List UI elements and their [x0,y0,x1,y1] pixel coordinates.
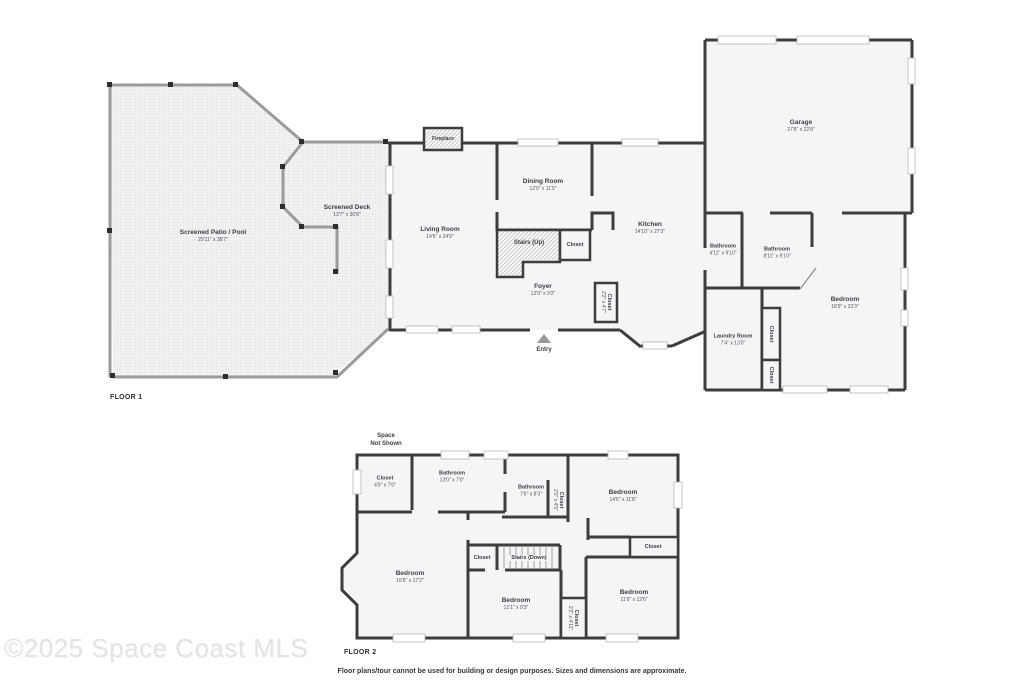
room-foyer: Foyer 12'0" x 9'2" [531,283,556,297]
stair-closet-label-floor1: Closet [567,242,584,248]
room-dims: 7'6" x 8'3" [518,491,544,497]
closet-dims: 2'2" x 4'11" [567,606,573,630]
entry-label: Entry [536,347,551,353]
vert-closet-bottom-label: Closet 2'2" x 4'11" [567,606,579,630]
room-garage: Garage 27'8" x 22'8" [787,119,814,133]
room-name: Living Room [420,226,459,234]
room-name: Bedroom [502,597,531,605]
room-dims: 4'11" x 9'10" [709,250,736,256]
room-dims: 14'10" x 27'3" [635,229,665,235]
space-note-line1: Space [370,433,401,441]
room-dims: 13'0" x 7'0" [439,477,465,483]
vert-closet-top-label: Closet 2'0" x 4'5" [552,489,564,511]
room-dims: 8'11" x 9'10" [763,253,790,259]
right-closet-label: Closet [645,544,662,550]
floor1-room-fills [110,40,912,390]
room-dining-room: Dining Room 12'0" x 11'5" [523,178,563,192]
floor2-tag: FLOOR 2 [344,649,376,656]
room-name: Foyer [531,283,556,291]
closet-name: Closet [558,489,564,511]
room-kitchen: Kitchen 14'10" x 27'3" [635,221,665,235]
room-name: Bedroom [831,296,860,304]
room-name: Bedroom [620,589,649,597]
stairs-up-label: Stairs (Up) [514,240,544,246]
stair-closet-label-floor2: Closet [474,555,491,561]
room-bedroom-floor1: Bedroom 18'9" x 23'3" [831,296,860,310]
room-name: Closet [374,475,396,482]
room-screened-deck: Screened Deck 13'7" x 30'8" [324,204,371,218]
hall-closet-1-label: Closet [768,326,774,343]
room-dims: 16'6" x 17'2" [396,578,425,584]
room-dims: 12'1" x 9'3" [502,605,531,611]
space-note-line2: Not Shown [370,441,401,449]
floorplan-canvas [0,0,1024,683]
closet-name: Closet [606,291,612,313]
room-dims: 7'4" x 13'0" [714,340,753,346]
room-name: Bedroom [609,489,638,497]
room-name: Bedroom [396,570,425,578]
room-name: Bathroom [763,246,790,253]
room-bedroom-floor2-mid: Bedroom 12'1" x 9'3" [502,597,531,611]
room-name: Bathroom [709,243,736,250]
floor1-tag: FLOOR 1 [110,394,142,401]
room-dims: 29'11" x 38'7" [180,237,246,243]
room-dims: 4'9" x 7'0" [374,482,396,488]
room-bedroom-floor2-big: Bedroom 16'6" x 17'2" [396,570,425,584]
fireplace-label: Fireplace [432,136,454,142]
room-bedroom-floor2-topright: Bedroom 14'6" x 11'8" [609,489,638,503]
stairs-down-label: Stairs (Down) [509,555,548,561]
room-dims: 12'0" x 9'2" [531,291,556,297]
closet-name: Closet [573,606,579,630]
room-bedroom-floor2-bottomright: Bedroom 11'9" x 12'6" [620,589,649,603]
room-bathroom-floor2-left: Bathroom 13'0" x 7'0" [439,470,465,483]
room-name: Screened Deck [324,204,371,212]
room-name: Kitchen [635,221,665,229]
disclaimer-text: Floor plans/tour cannot be used for buil… [0,668,1024,675]
room-dims: 11'9" x 12'6" [620,597,649,603]
room-bathroom-large: Bathroom 8'11" x 9'10" [763,246,790,259]
room-laundry: Laundry Room 7'4" x 13'0" [714,333,753,346]
room-name: Dining Room [523,178,563,186]
room-screened-patio-pool: Screened Patio / Pool 29'11" x 38'7" [180,229,246,243]
closet-dims: 2'0" x 4'5" [552,489,558,511]
room-dims: 14'6" x 11'8" [609,497,638,503]
entry-arrow [537,334,551,343]
room-dims: 12'0" x 11'5" [523,186,563,192]
floorplan-page: Screened Patio / Pool 29'11" x 38'7" Scr… [0,0,1024,683]
room-name: Bathroom [439,470,465,477]
room-dims: 14'6" x 24'9" [420,234,459,240]
room-name: Bathroom [518,484,544,491]
hall-closet-2-label: Closet [768,367,774,384]
room-closet-floor2-topleft: Closet 4'9" x 7'0" [374,475,396,488]
room-bathroom-floor2-mid: Bathroom 7'6" x 8'3" [518,484,544,497]
room-dims: 27'8" x 22'8" [787,127,814,133]
room-name: Screened Patio / Pool [180,229,246,237]
room-name: Laundry Room [714,333,753,340]
closet-dims: 2'2" x 4'7" [600,291,606,313]
room-dims: 18'9" x 23'3" [831,304,860,310]
room-living-room: Living Room 14'6" x 24'9" [420,226,459,240]
space-not-shown-note: Space Not Shown [370,433,401,449]
mls-watermark: ©2025 Space Coast MLS [4,633,308,664]
room-name: Garage [787,119,814,127]
foyer-closet-label: Closet 2'2" x 4'7" [600,291,612,313]
room-bathroom-small: Bathroom 4'11" x 9'10" [709,243,736,256]
room-dims: 13'7" x 30'8" [324,212,371,218]
